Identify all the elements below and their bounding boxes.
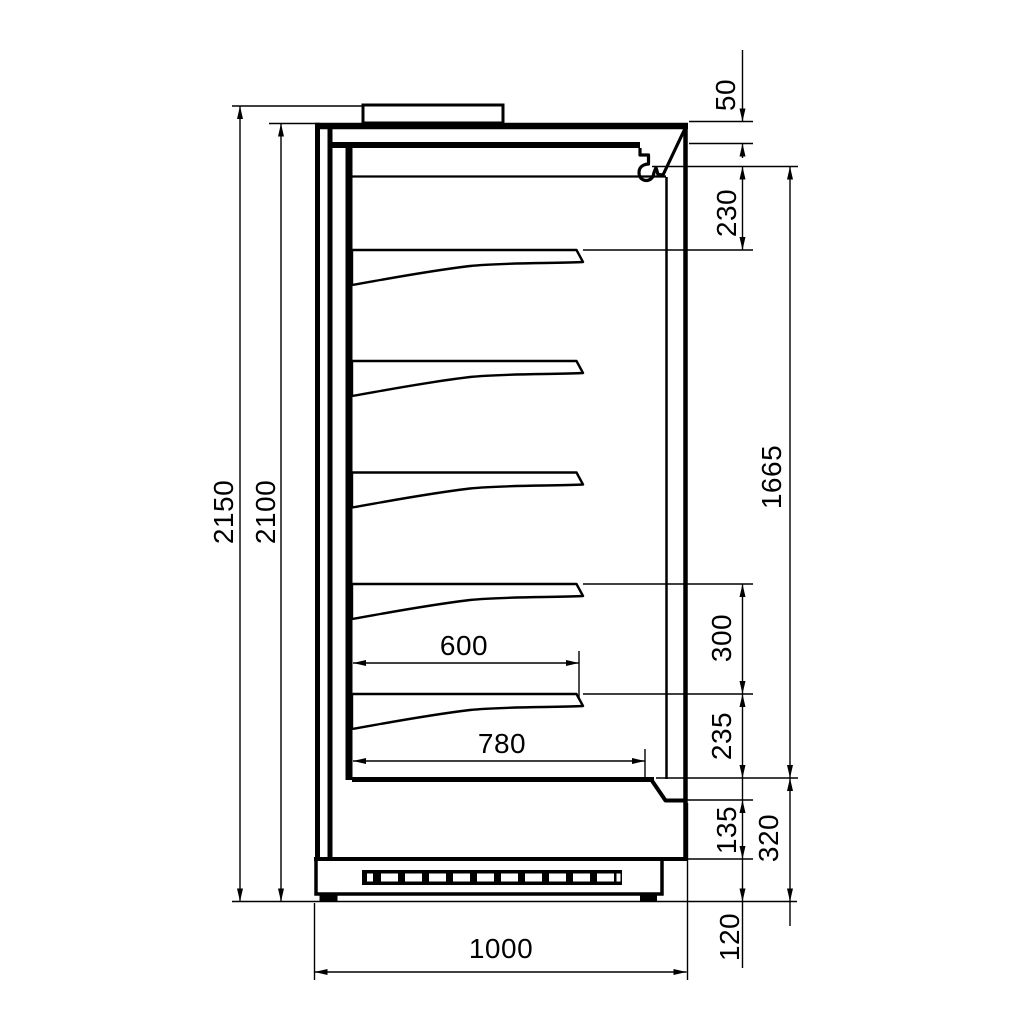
top-block xyxy=(363,105,503,123)
shelf-5 xyxy=(352,694,583,729)
foot-left xyxy=(320,894,338,902)
shelf-1 xyxy=(352,250,583,285)
dim-label-plinth-clearance: 120 xyxy=(716,913,744,961)
dim-label-overall-height: 2150 xyxy=(210,480,238,544)
dim-label-front-panel-height: 135 xyxy=(713,806,741,854)
dim-label-shelf-to-deck: 235 xyxy=(708,712,736,760)
dim-label-shelf-spacing: 300 xyxy=(708,614,736,662)
front-kick-profile xyxy=(652,780,688,801)
dim-label-shelf-depth: 600 xyxy=(440,632,488,660)
technical-drawing-page: 2150 2100 50 230 1665 300 235 135 320 12… xyxy=(0,0,1024,1024)
dim-label-canopy-thickness: 50 xyxy=(712,79,740,111)
drawing-canvas xyxy=(0,0,1024,1024)
shelf-2 xyxy=(352,361,583,396)
dim-label-canopy-to-top-shelf: 230 xyxy=(713,189,741,237)
canopy-light-channel xyxy=(639,128,686,181)
canopy xyxy=(315,126,688,180)
dim-label-opening-height: 1665 xyxy=(758,445,786,509)
back-wall xyxy=(318,123,350,858)
dim-label-cabinet-height: 2100 xyxy=(252,480,280,544)
foot-right xyxy=(640,894,657,902)
shelf-3 xyxy=(352,473,583,508)
vent-grille xyxy=(362,870,622,885)
dim-label-base-section-height: 320 xyxy=(755,814,783,862)
shelf-4 xyxy=(352,584,583,619)
dim-label-overall-depth: 1000 xyxy=(469,935,533,963)
dim-label-deck-depth: 780 xyxy=(478,730,526,758)
dimension-arrowheads xyxy=(237,106,793,975)
